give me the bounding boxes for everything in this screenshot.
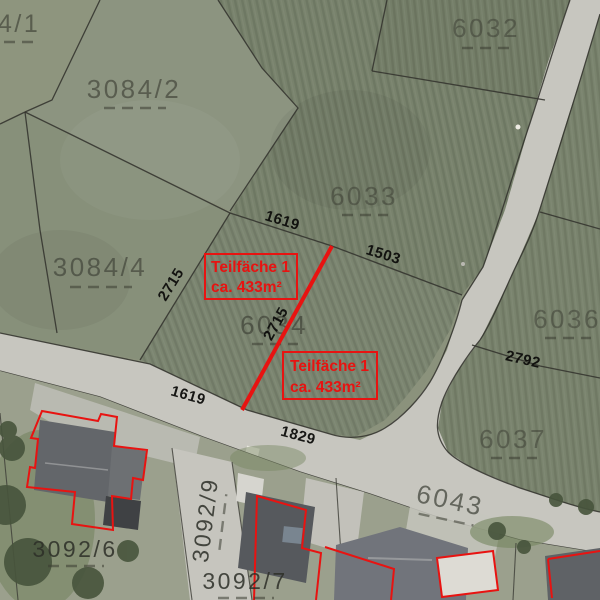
parcel-label-3092-7: 3092/7 [202,568,287,594]
cadastral-map: 4/1 3084/2 3084/4 6032 6033 6034 6036 60… [0,0,600,600]
tree-icon [0,435,25,461]
annotation-box-1-line2: ca. 433m² [211,279,282,296]
parcel-label-3084-2: 3084/2 [87,74,182,104]
house-3092-6-wing [108,446,146,500]
building-light [437,551,498,597]
parcel-label-3084-4: 3084/4 [53,252,148,282]
road-mark2 [461,262,465,266]
parcel-label-6037: 6037 [479,424,547,454]
house-3092-6-garage [103,496,141,530]
lawn-right [470,516,554,548]
tree-icon [488,522,506,540]
tree-icon [578,499,594,515]
tree-icon [549,493,563,507]
cadastral-map-viewport: 4/1 3084/2 3084/4 6032 6033 6034 6036 60… [0,0,600,600]
annotation-box-1-line1: Teilfäche 1 [211,259,290,276]
annotation-box-2-line1: Teilfäche 1 [290,358,369,375]
field-highlight [60,100,240,220]
parcel-label-6032: 6032 [452,13,520,43]
tree-icon [117,540,139,562]
tree-icon [517,540,531,554]
annotation-box-2-line2: ca. 433m² [290,379,361,396]
lawn-front [230,445,306,471]
tree-icon [72,567,104,599]
parcel-label-6036: 6036 [533,304,600,334]
parcel-label-3084-1: 4/1 [0,10,40,38]
house-skylight [282,526,303,544]
road-mark [516,125,521,130]
parcel-label-6033: 6033 [330,181,398,211]
parcel-label-3092-6: 3092/6 [32,536,117,562]
